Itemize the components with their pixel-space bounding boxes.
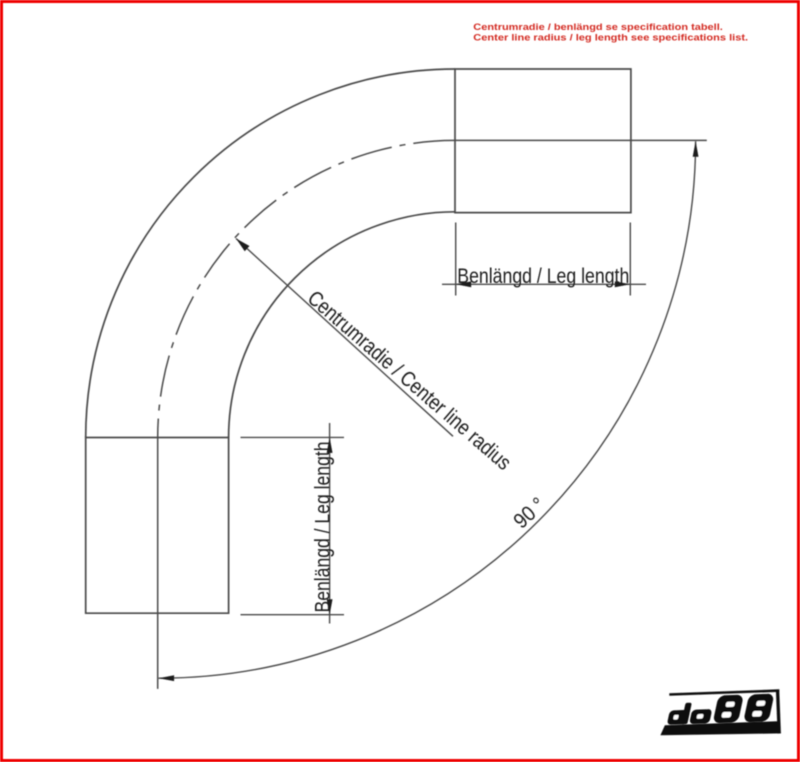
svg-text:Benlängd / Leg length: Benlängd / Leg length <box>457 264 629 288</box>
svg-text:Centrumradie / benlängd se spe: Centrumradie / benlängd se specification… <box>473 22 723 32</box>
svg-text:Center line radius / leg lengt: Center line radius / leg length see spec… <box>473 33 748 43</box>
svg-text:Benlängd / Leg length: Benlängd / Leg length <box>310 442 334 613</box>
